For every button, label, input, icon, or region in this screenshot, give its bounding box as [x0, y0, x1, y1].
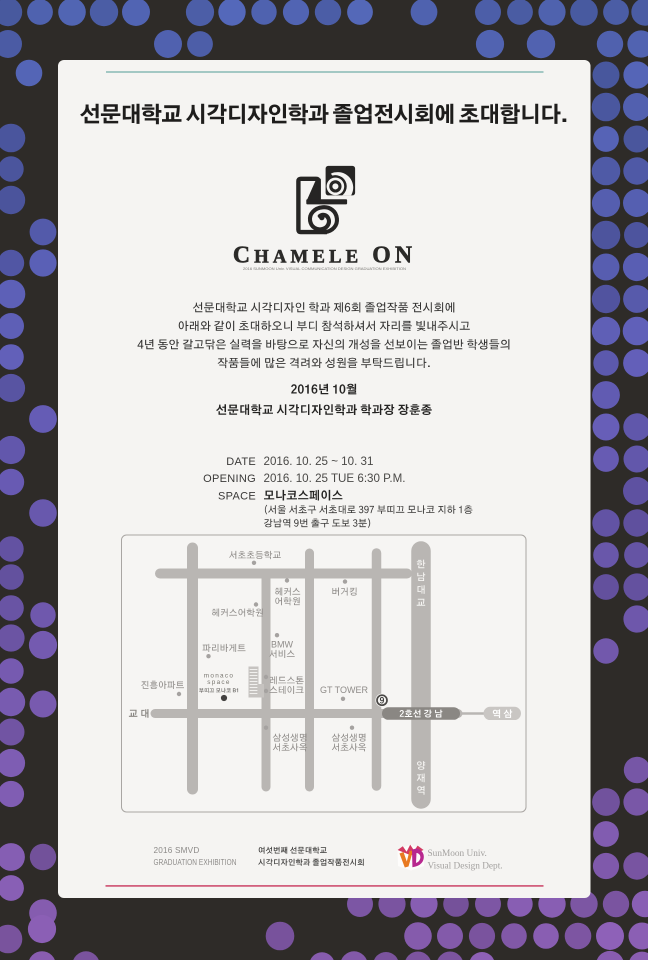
svg-text:2016. 10. 25 ~ 10. 31: 2016. 10. 25 ~ 10. 31: [264, 455, 374, 468]
svg-text:2016 SUNMOON Univ. VISUAL COMM: 2016 SUNMOON Univ. VISUAL COMMUNICATION …: [243, 267, 406, 271]
svg-text:BMW: BMW: [271, 640, 294, 650]
svg-text:GRADUATION EXHIBITION: GRADUATION EXHIBITION: [154, 858, 237, 867]
svg-text:OPENING: OPENING: [203, 473, 256, 485]
svg-text:SPACE: SPACE: [218, 491, 256, 503]
svg-text:2016 SMVD: 2016 SMVD: [154, 846, 200, 855]
svg-text:DATE: DATE: [226, 456, 256, 468]
svg-text:space: space: [207, 679, 231, 686]
svg-text:SunMoon Univ.: SunMoon Univ.: [428, 849, 487, 859]
svg-text:CHAMELE ON: CHAMELE ON: [233, 243, 416, 269]
svg-text:GT TOWER: GT TOWER: [320, 685, 369, 695]
svg-text:Visual Design Dept.: Visual Design Dept.: [428, 862, 503, 872]
svg-text:2016. 10. 25 TUE 6:30 P.M.: 2016. 10. 25 TUE 6:30 P.M.: [264, 472, 406, 485]
